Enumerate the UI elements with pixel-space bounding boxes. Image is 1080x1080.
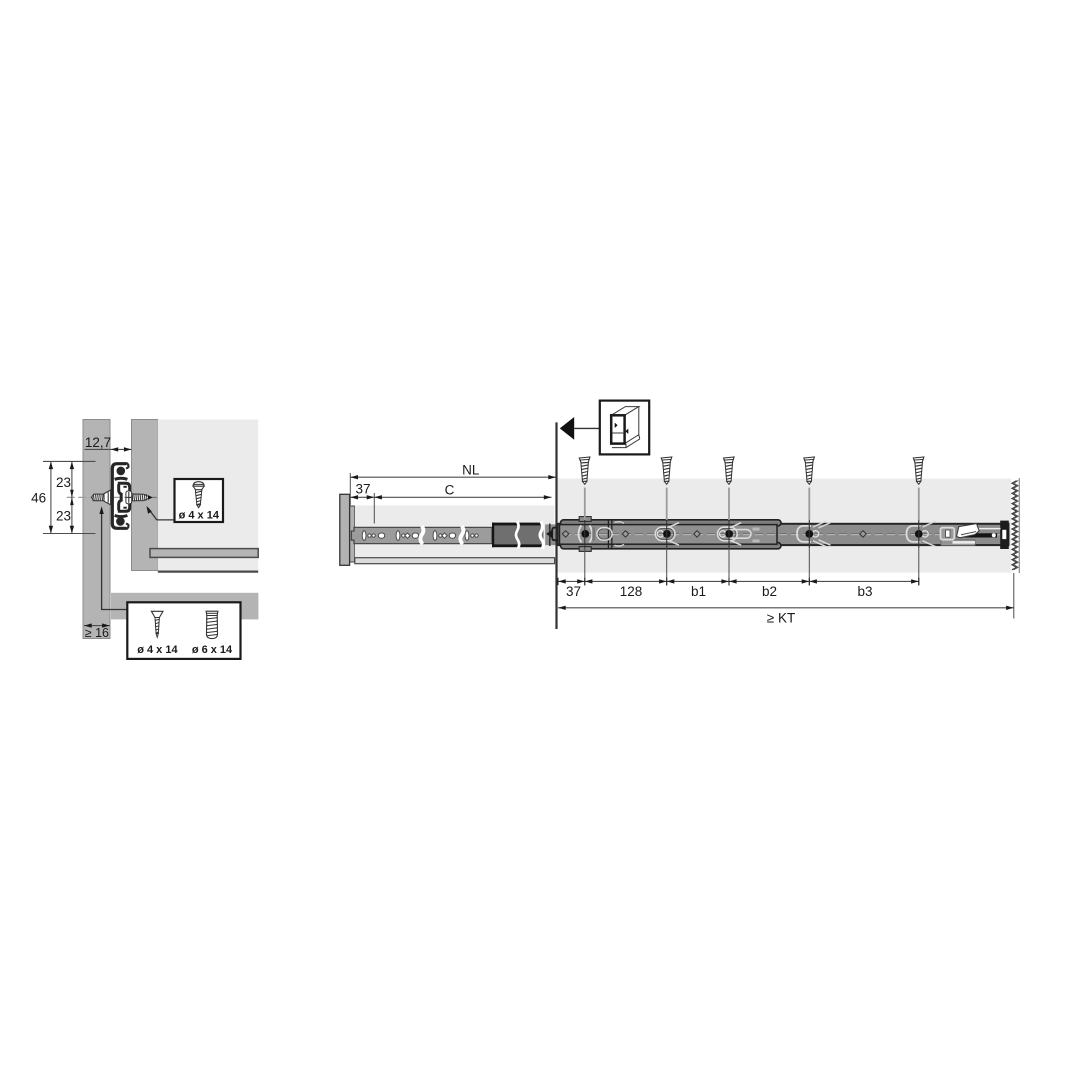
svg-text:b2: b2 xyxy=(762,584,777,599)
svg-text:b1: b1 xyxy=(691,584,706,599)
svg-text:ø 6 x 14: ø 6 x 14 xyxy=(192,644,233,656)
svg-text:ø 4 x 14: ø 4 x 14 xyxy=(179,510,220,522)
svg-text:≥ 16: ≥ 16 xyxy=(85,626,109,640)
svg-text:128: 128 xyxy=(620,584,643,599)
svg-text:23: 23 xyxy=(56,475,71,490)
svg-text:37: 37 xyxy=(566,584,581,599)
svg-text:ø 4 x 14: ø 4 x 14 xyxy=(137,644,178,656)
svg-text:46: 46 xyxy=(31,490,46,505)
svg-text:23: 23 xyxy=(56,509,71,524)
svg-text:b3: b3 xyxy=(857,584,872,599)
svg-text:≥ KT: ≥ KT xyxy=(767,611,795,626)
svg-text:NL: NL xyxy=(462,462,480,477)
svg-text:C: C xyxy=(445,482,455,497)
svg-text:37: 37 xyxy=(355,481,370,496)
svg-text:12,7: 12,7 xyxy=(85,435,111,450)
